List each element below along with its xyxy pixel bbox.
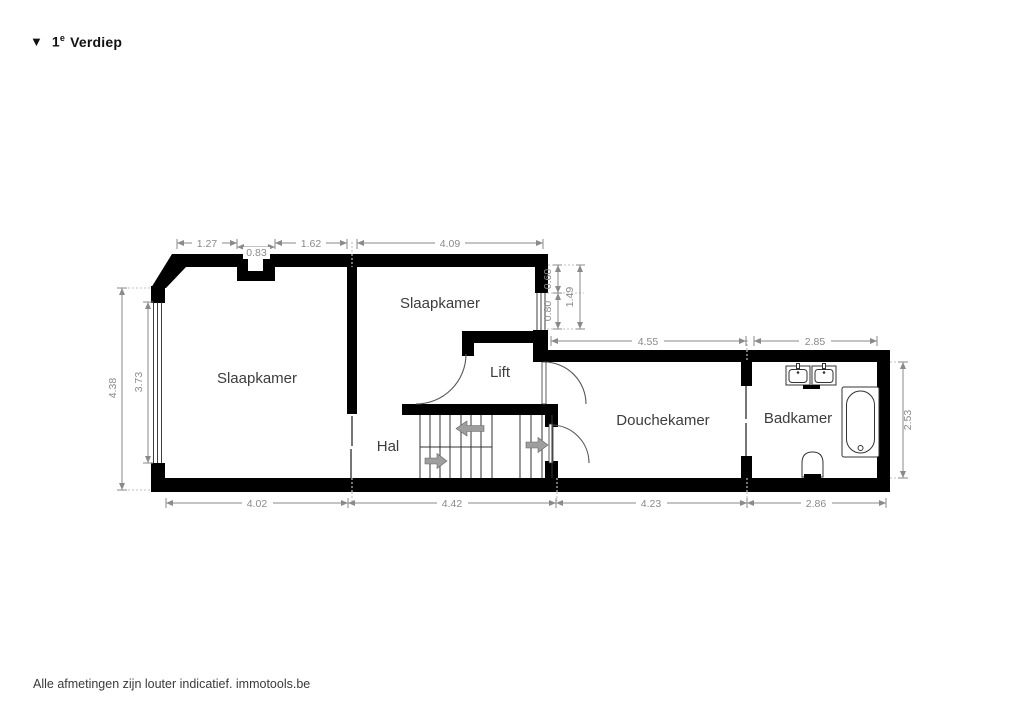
dim-right-window-width: 0.80 — [542, 301, 554, 322]
room-label-lift: Lift — [490, 364, 511, 381]
dim-chimney-width: 0.83 — [246, 247, 267, 259]
dim-shower-room-width: 4.55 — [638, 336, 659, 348]
shower-room-door-leaf — [542, 362, 546, 404]
dim-bottom-hall-width: 4.42 — [442, 498, 463, 510]
sink-left-faucet-icon — [797, 364, 800, 369]
wall-chamfer-topleft — [151, 254, 186, 288]
wall-bottom — [151, 478, 890, 492]
room-label-hall: Hal — [377, 438, 400, 455]
room-label-shower-room: Douchekamer — [616, 412, 709, 429]
toilet-base — [804, 474, 821, 478]
floorplan-canvas: ▼ 1eVerdiep — [0, 0, 1024, 724]
shower-room-door-arc — [544, 362, 586, 404]
dim-top-left-width: 1.27 — [197, 238, 218, 250]
dim-bathroom-height: 2.53 — [902, 410, 914, 431]
stairs-arrow-right-lower-icon — [425, 454, 447, 469]
window-left — [154, 302, 162, 463]
vanity-base — [803, 385, 820, 389]
dim-right-upper-offset: 0.60 — [542, 269, 554, 290]
stairs-arrow-left-icon — [456, 421, 484, 436]
wall-left-top-block — [151, 286, 165, 303]
room-label-bathroom: Badkamer — [764, 410, 832, 427]
wall-bedroom-divider — [347, 254, 357, 414]
dim-left-total-height: 4.38 — [107, 378, 119, 399]
landing-door-arc — [551, 425, 589, 463]
wall-top — [173, 254, 547, 267]
sink-right-faucet-icon — [823, 364, 826, 369]
dim-bottom-bedroom-width: 4.02 — [247, 498, 268, 510]
dim-left-window-height: 3.73 — [133, 372, 145, 393]
stairs-arrow-right-flight-icon — [526, 438, 548, 453]
toilet — [802, 452, 823, 477]
dim-top-mid-width: 1.62 — [301, 238, 322, 250]
room-label-bedroom-middle: Slaapkamer — [400, 295, 480, 312]
stairs-direction-arrows — [425, 421, 548, 469]
wall-stairs-top — [402, 404, 558, 415]
dim-bathroom-width: 2.85 — [805, 336, 826, 348]
wall-lift-stub — [462, 331, 474, 356]
dim-bottom-shower-width: 4.23 — [641, 498, 662, 510]
dim-bottom-bathroom-width: 2.86 — [806, 498, 827, 510]
disclaimer-text: Alle afmetingen zijn louter indicatief. … — [33, 677, 310, 691]
lift-door-arc — [416, 354, 466, 404]
bathtub-basin — [847, 391, 875, 453]
wall-shower-bath-divider-top — [741, 350, 752, 386]
room-label-bedroom-left: Slaapkamer — [217, 370, 297, 387]
bathtub-drain-icon — [858, 446, 863, 451]
floorplan-svg: 1.27 0.83 1.62 4.09 0.60 0.80 1.49 4.38 … — [0, 0, 1024, 724]
room-labels: Slaapkamer Slaapkamer Lift Hal Douchekam… — [217, 295, 832, 455]
dim-bedroom-middle-width: 4.09 — [440, 238, 461, 250]
dim-right-upper-total: 1.49 — [564, 287, 576, 308]
wall-bath-top — [545, 350, 890, 362]
